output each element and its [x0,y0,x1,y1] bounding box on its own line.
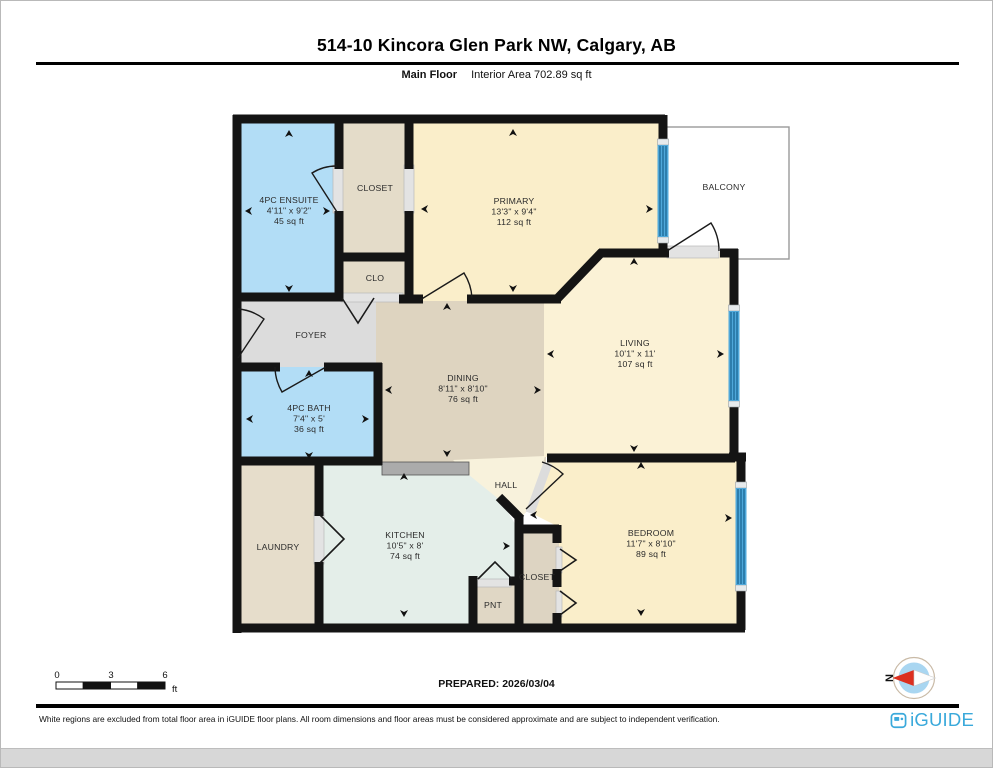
bottom-strip [1,748,992,768]
room-label-closet-bottom: CLOSET [519,572,555,582]
window-cap [658,237,669,243]
iguide-logo-text: iGUIDE [910,709,974,731]
door-sill [333,165,343,213]
door-sill [667,246,719,258]
window-cap [736,482,747,488]
door-sill [476,579,511,587]
room-label-foyer: FOYER [296,330,327,340]
room-label-hall: HALL [495,480,518,490]
room-label-pnt: PNT [484,600,502,610]
room-label-kitchen: KITCHEN10'5" x 8'74 sq ft [385,530,425,561]
window-cap [729,401,740,407]
room-label-laundry: LAUNDRY [257,542,300,552]
floorplan-page: 514-10 Kincora Glen Park NW, Calgary, AB… [0,0,993,768]
window-cap [736,585,747,591]
floorplan-drawing: BALCONYFOYERDINING8'11" x 8'10"76 sq ftH… [1,1,993,768]
kitchen-counter [382,462,469,475]
disclaimer-text: White regions are excluded from total fl… [39,714,829,724]
room-label-clo: CLO [366,273,385,283]
door-sill [404,165,414,213]
room-label-closet-top: CLOSET [357,183,393,193]
window-cap [729,305,740,311]
room-label-balcony: BALCONY [703,182,746,192]
footer-divider [36,704,959,708]
room-label-living: LIVING10'1" x 11'107 sq ft [614,338,655,369]
room-balcony [665,127,789,259]
prepared-date: PREPARED: 2026/03/04 [1,678,992,690]
room-label-primary: PRIMARY13'3" x 9'4"112 sq ft [491,196,536,227]
door-sill [314,512,324,564]
window-cap [658,139,669,145]
iguide-logo: iGUIDE [890,709,974,731]
iguide-logo-icon [890,712,907,729]
